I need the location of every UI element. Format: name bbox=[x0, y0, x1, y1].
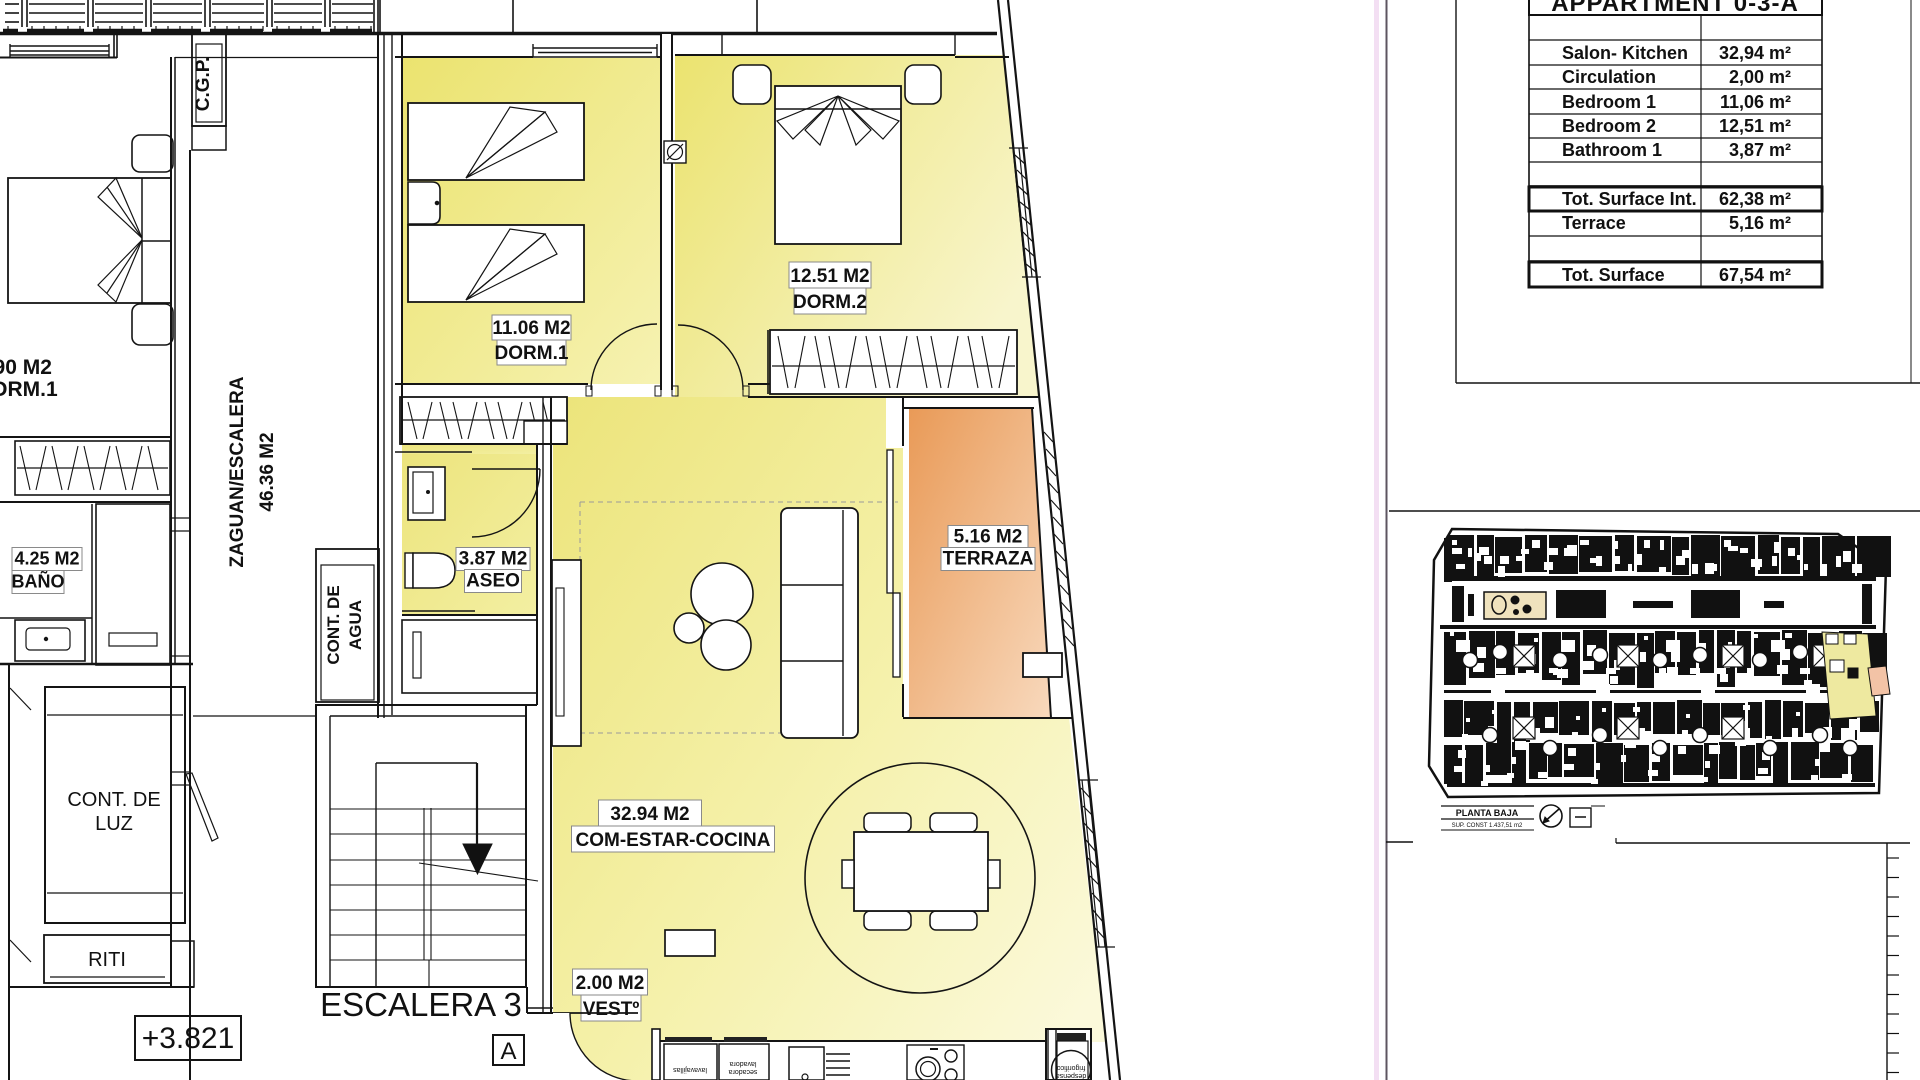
svg-text:4.25 M2: 4.25 M2 bbox=[14, 549, 79, 569]
svg-text:ASEO: ASEO bbox=[466, 571, 520, 592]
svg-text:11,06 m²: 11,06 m² bbox=[1720, 92, 1791, 112]
svg-text:secadora: secadora bbox=[728, 1068, 757, 1075]
svg-text:SUP. CONST 1.437,51 m2: SUP. CONST 1.437,51 m2 bbox=[1452, 823, 1523, 829]
svg-text:Salon- Kitchen: Salon- Kitchen bbox=[1562, 43, 1688, 63]
svg-text:VESTº: VESTº bbox=[583, 999, 640, 1020]
svg-text:4.90 M2: 4.90 M2 bbox=[0, 356, 52, 379]
svg-text:5,16 m²: 5,16 m² bbox=[1729, 213, 1791, 233]
svg-text:Tot. Surface: Tot. Surface bbox=[1562, 265, 1665, 285]
svg-text:ZAGUAN/ESCALERA: ZAGUAN/ESCALERA bbox=[227, 376, 248, 567]
svg-text:67,54 m²: 67,54 m² bbox=[1719, 265, 1791, 285]
svg-text:11.06 M2: 11.06 M2 bbox=[492, 318, 570, 339]
svg-text:A: A bbox=[500, 1038, 516, 1065]
svg-text:BAÑO: BAÑO bbox=[12, 571, 65, 592]
svg-text:ESCALERA 3: ESCALERA 3 bbox=[320, 986, 522, 1023]
svg-text:12.51 M2: 12.51 M2 bbox=[790, 266, 869, 287]
svg-text:Bedroom 1: Bedroom 1 bbox=[1562, 92, 1656, 112]
svg-text:CONT. DE: CONT. DE bbox=[324, 585, 343, 664]
svg-text:3,87 m²: 3,87 m² bbox=[1729, 140, 1791, 160]
svg-text:COM-ESTAR-COCINA: COM-ESTAR-COCINA bbox=[576, 830, 771, 851]
svg-text:PLANTA BAJA: PLANTA BAJA bbox=[1456, 808, 1519, 818]
svg-text:frigorifico: frigorifico bbox=[1057, 1064, 1086, 1071]
svg-text:2,00 m²: 2,00 m² bbox=[1729, 67, 1791, 87]
svg-text:32.94 M2: 32.94 M2 bbox=[610, 804, 689, 825]
svg-text:DORM.1: DORM.1 bbox=[495, 343, 569, 364]
svg-text:APPARTMENT 0-3-A: APPARTMENT 0-3-A bbox=[1551, 0, 1799, 17]
svg-text:DORM.1: DORM.1 bbox=[0, 378, 58, 401]
svg-text:CONT. DE: CONT. DE bbox=[67, 789, 160, 811]
svg-text:2.00 M2: 2.00 M2 bbox=[576, 973, 645, 994]
svg-text:lavadora: lavadora bbox=[729, 1060, 756, 1067]
svg-text:Circulation: Circulation bbox=[1562, 67, 1656, 87]
svg-text:RITI: RITI bbox=[88, 949, 126, 971]
svg-text:despensa: despensa bbox=[1056, 1072, 1086, 1079]
svg-text:62,38 m²: 62,38 m² bbox=[1719, 189, 1791, 209]
svg-text:+3.821: +3.821 bbox=[142, 1022, 235, 1055]
svg-text:Tot. Surface Int.: Tot. Surface Int. bbox=[1562, 189, 1697, 209]
svg-text:DORM.2: DORM.2 bbox=[793, 292, 867, 313]
svg-text:46.36 M2: 46.36 M2 bbox=[257, 432, 278, 511]
svg-text:32,94 m²: 32,94 m² bbox=[1719, 43, 1791, 63]
svg-text:AGUA: AGUA bbox=[346, 600, 365, 650]
svg-text:Bathroom 1: Bathroom 1 bbox=[1562, 140, 1662, 160]
svg-text:Bedroom 2: Bedroom 2 bbox=[1562, 116, 1656, 136]
svg-text:Terrace: Terrace bbox=[1562, 213, 1626, 233]
svg-text:TERRAZA: TERRAZA bbox=[943, 549, 1034, 570]
svg-text:LUZ: LUZ bbox=[95, 813, 133, 835]
svg-text:C.G.P.: C.G.P. bbox=[193, 57, 214, 112]
svg-text:5.16 M2: 5.16 M2 bbox=[954, 527, 1023, 548]
svg-text:12,51 m²: 12,51 m² bbox=[1719, 116, 1791, 136]
svg-text:3.87 M2: 3.87 M2 bbox=[459, 549, 528, 570]
svg-text:lavavajillas: lavavajillas bbox=[673, 1066, 707, 1073]
